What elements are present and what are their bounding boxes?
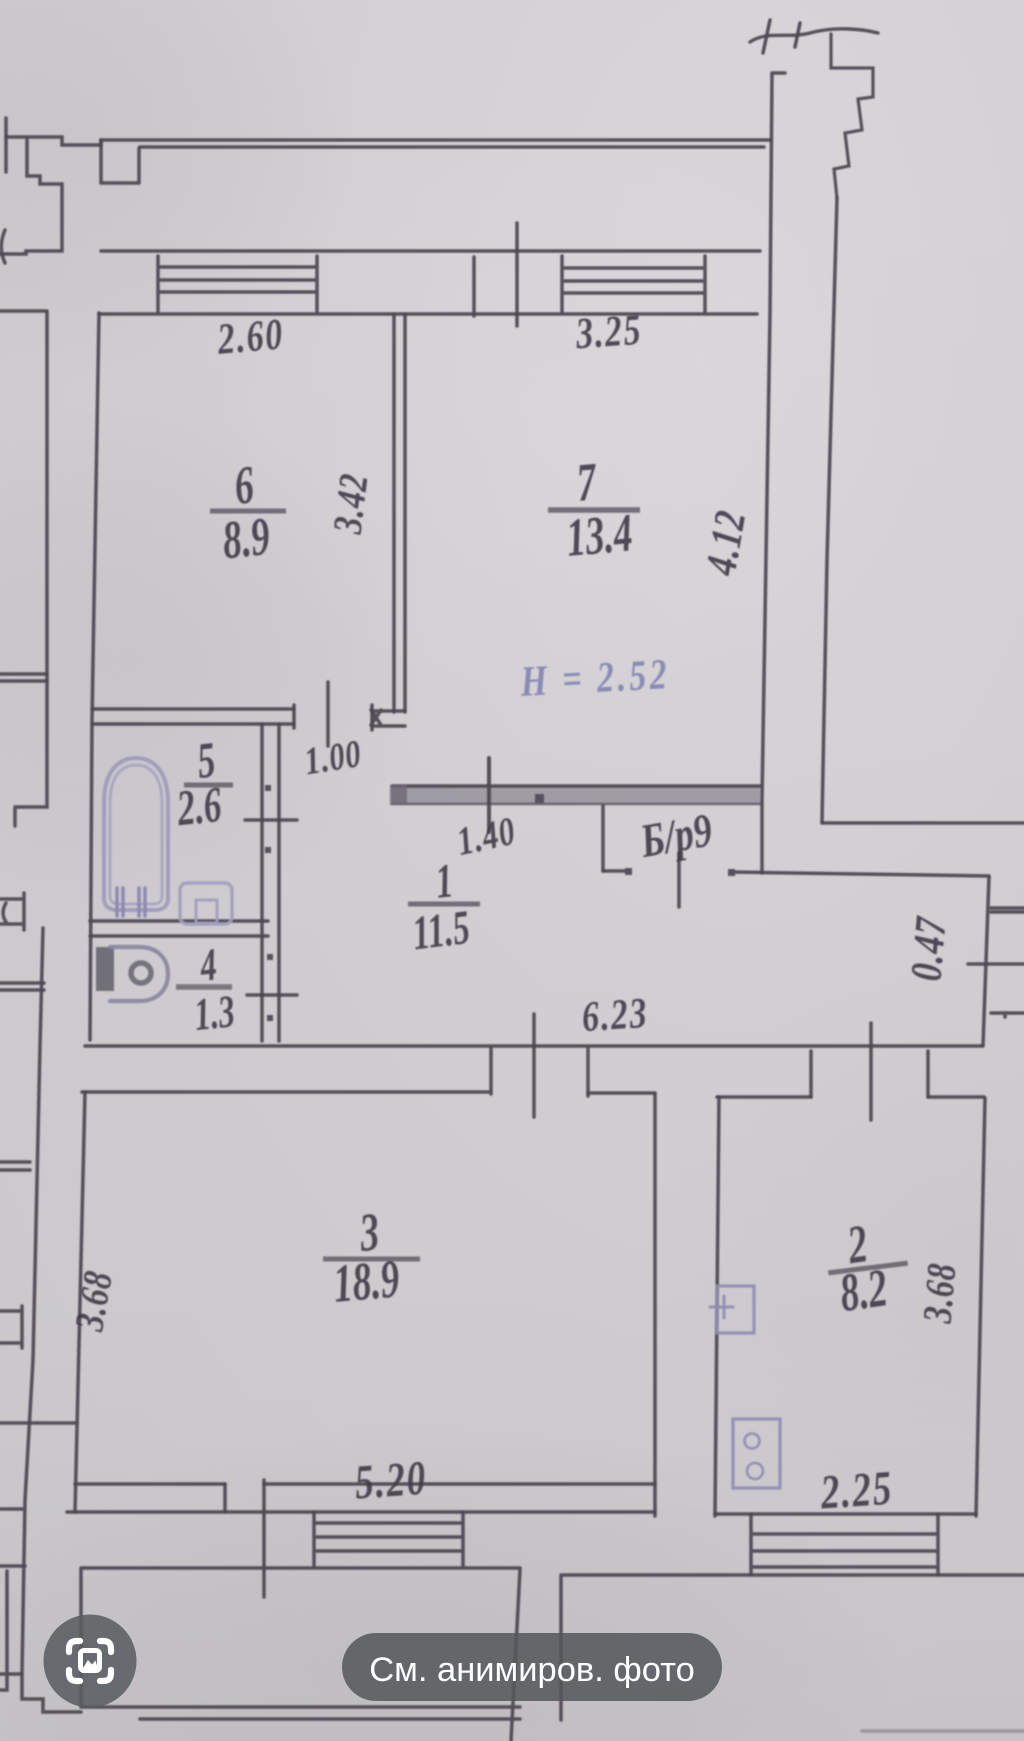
svg-text:2.6: 2.6 [174,777,225,837]
svg-text:8.9: 8.9 [220,507,273,571]
svg-text:Н = 2.52: Н = 2.52 [519,650,672,706]
svg-text:11.5: 11.5 [410,900,473,960]
svg-text:См. анимиров. фото: См. анимиров. фото [369,1651,695,1689]
svg-text:2.60: 2.60 [215,309,286,364]
svg-text:0.47: 0.47 [900,913,956,982]
svg-text:5.20: 5.20 [353,1451,429,1510]
svg-text:3.68: 3.68 [914,1261,965,1326]
svg-text:6.23: 6.23 [580,989,649,1041]
svg-text:1.00: 1.00 [301,732,364,784]
svg-text:13.4: 13.4 [564,504,635,569]
svg-text:1.3: 1.3 [192,985,237,1040]
svg-text:2.25: 2.25 [818,1461,895,1520]
svg-text:18.9: 18.9 [331,1250,402,1315]
svg-text:8.2: 8.2 [836,1259,891,1324]
svg-text:3.42: 3.42 [324,471,377,537]
svg-text:3.25: 3.25 [573,305,643,359]
